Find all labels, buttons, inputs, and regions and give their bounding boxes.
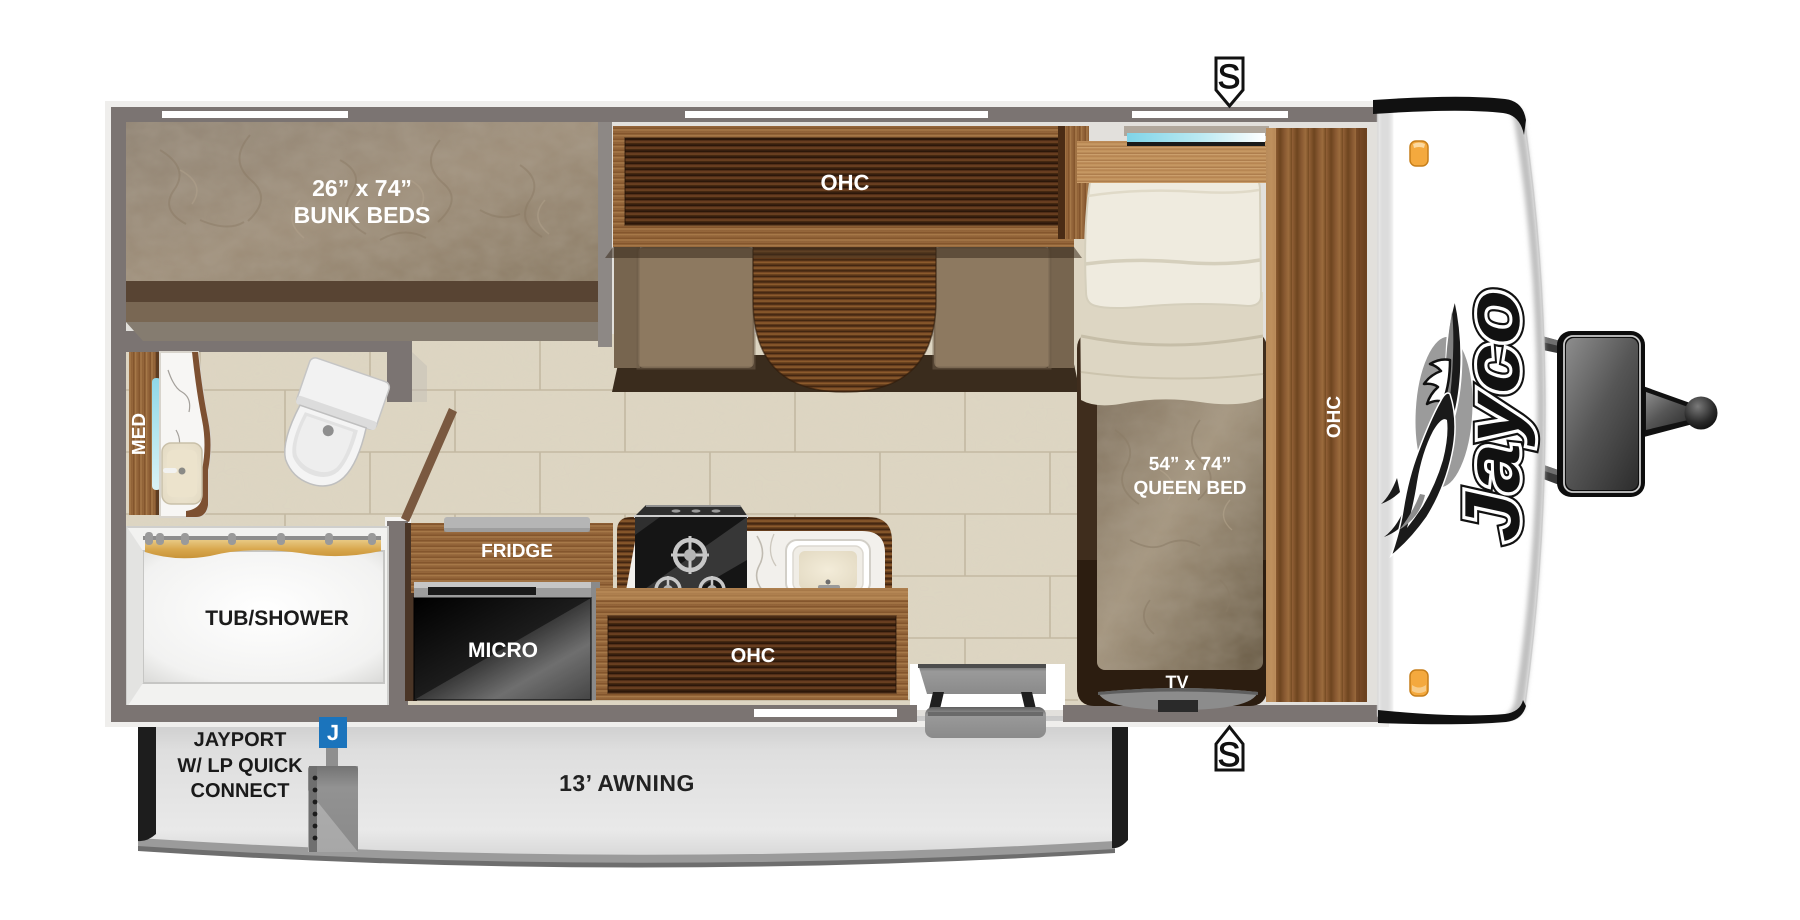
svg-text:S: S (1218, 58, 1241, 96)
svg-text:J: J (327, 720, 339, 745)
svg-text:26” x 74”: 26” x 74” (312, 175, 412, 201)
svg-text:13’ AWNING: 13’ AWNING (559, 770, 695, 796)
svg-text:QUEEN BED: QUEEN BED (1134, 478, 1247, 499)
svg-text:OHC: OHC (821, 170, 870, 195)
svg-text:CONNECT: CONNECT (191, 780, 290, 802)
svg-text:MED: MED (129, 413, 150, 455)
svg-text:Jayco: Jayco (1448, 290, 1536, 542)
svg-text:S: S (1218, 736, 1241, 774)
svg-text:54” x 74”: 54” x 74” (1149, 454, 1231, 475)
svg-text:OHC: OHC (1324, 396, 1345, 439)
svg-text:FRIDGE: FRIDGE (481, 541, 553, 562)
svg-text:BUNK BEDS: BUNK BEDS (294, 202, 431, 228)
svg-text:OHC: OHC (731, 645, 775, 667)
svg-text:TUB/SHOWER: TUB/SHOWER (205, 607, 349, 630)
svg-text:JAYPORT: JAYPORT (194, 729, 287, 751)
svg-text:W/ LP QUICK: W/ LP QUICK (177, 755, 303, 777)
svg-text:MICRO: MICRO (468, 639, 538, 662)
